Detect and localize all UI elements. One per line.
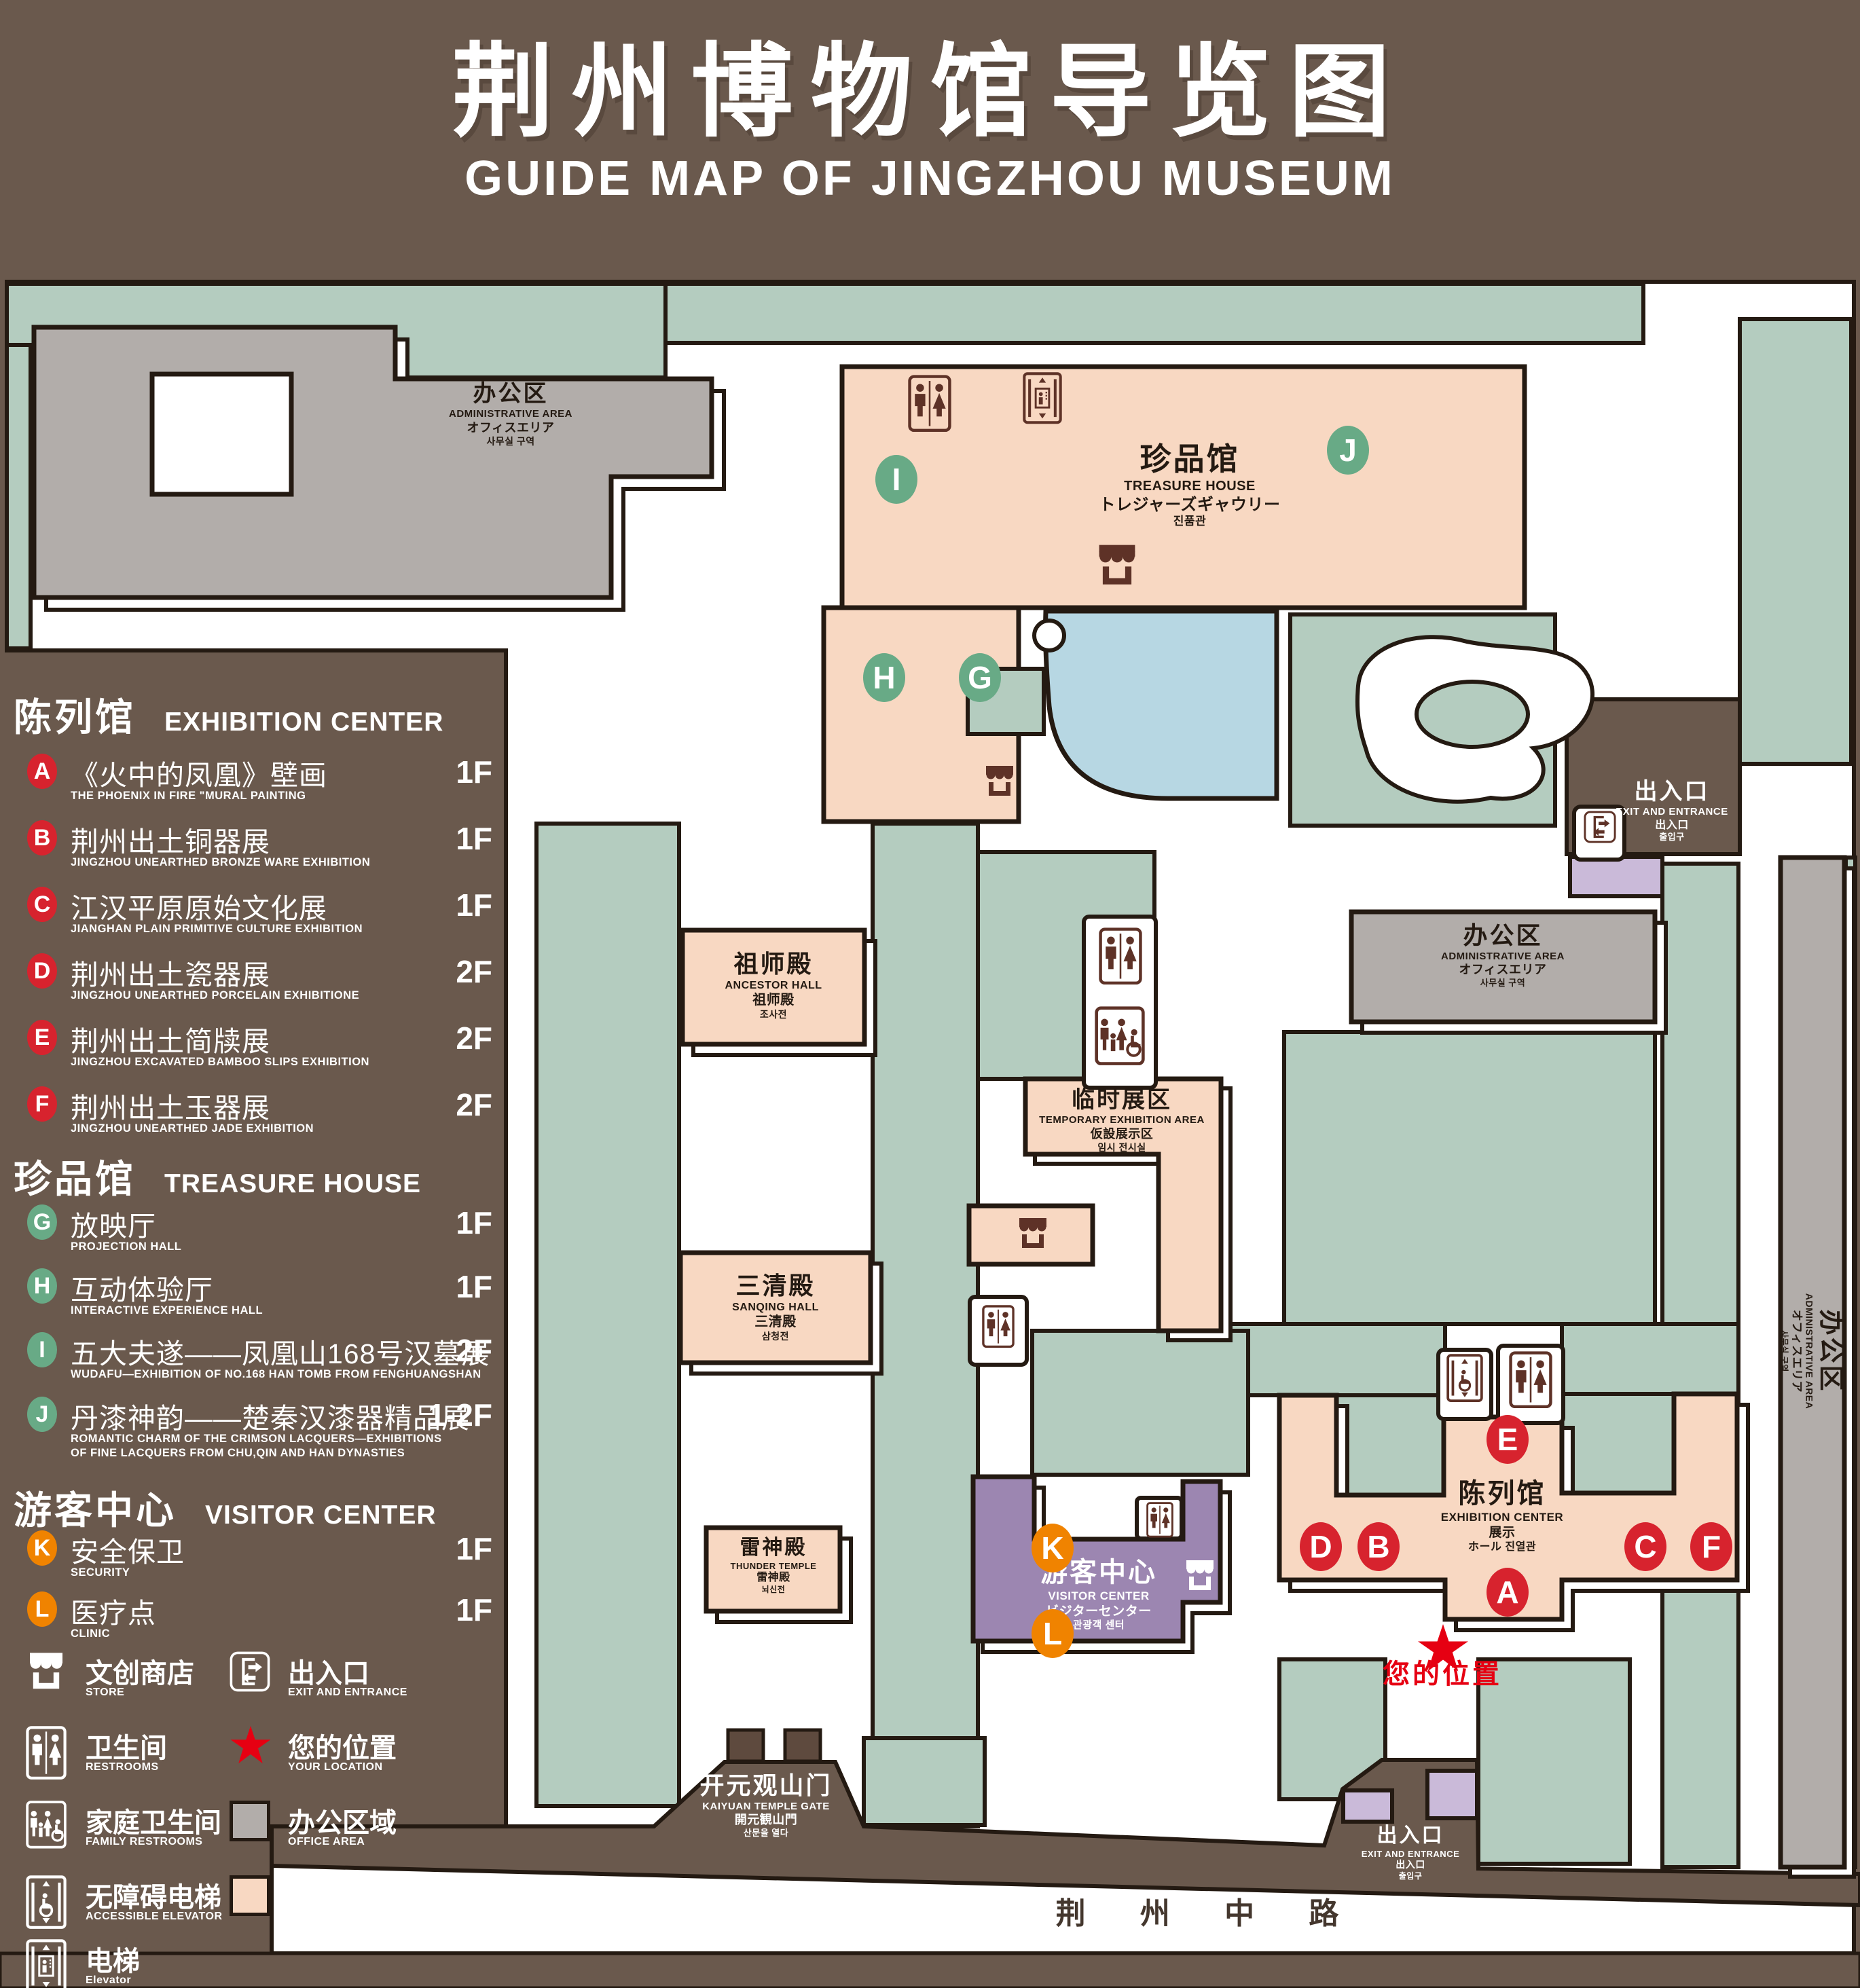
- legend-badge-I: I: [27, 1332, 57, 1367]
- legend-item-floor: 1F: [390, 887, 492, 923]
- elevator-icon-label-en: Elevator: [86, 1974, 131, 1987]
- pond: [1046, 611, 1277, 798]
- building-admin-right: [1351, 912, 1655, 1022]
- legend-item-zh: 荆州出土铜器展: [71, 819, 270, 860]
- guide-map-poster: 荆州博物馆导览图 GUIDE MAP OF JINGZHOU MUSEUM: [0, 0, 1860, 1988]
- office-area-swatch: [230, 1801, 270, 1841]
- legend-item-en: INTERACTIVE EXPERIENCE HALL: [71, 1304, 263, 1318]
- legend-item-en: PROJECTION HALL: [71, 1240, 181, 1254]
- legend-badge-G: G: [27, 1204, 57, 1240]
- legend-panel: 陈列馆EXHIBITION CENTERA《火中的凤凰》壁画THE PHOENI…: [14, 0, 503, 1988]
- legend-item-floor: 2F: [390, 953, 492, 990]
- your-location-icon-label-en: YOUR LOCATION: [288, 1761, 383, 1773]
- elevator-icon-label-zh: 电梯: [86, 1939, 140, 1978]
- legend-section-treasure-house: 珍品馆TREASURE HOUSE: [14, 1149, 421, 1204]
- office-area-swatch-label-zh: 办公区域: [288, 1801, 397, 1840]
- exit-icon: [230, 1651, 270, 1692]
- legend-item-zh: 江汉平原原始文化展: [71, 885, 327, 926]
- gate-pillar: [728, 1730, 763, 1761]
- legend-item-zh: 《火中的凤凰》壁画: [71, 752, 327, 793]
- legend-badge-L: L: [27, 1591, 57, 1627]
- accessible-elevator-icon: [26, 1875, 67, 1929]
- your-location-icon-label-zh: 您的位置: [288, 1726, 397, 1765]
- store-icon-label-en: STORE: [86, 1687, 124, 1699]
- legend-item-en: THE PHOENIX IN FIRE "MURAL PAINTING: [71, 789, 306, 803]
- legend-item-floor: 2F: [390, 1086, 492, 1123]
- pond-island: [968, 669, 1044, 734]
- legend-item-zh: 荆州出土简牍展: [71, 1018, 270, 1059]
- legend-item-floor: 2F: [390, 1020, 492, 1056]
- store-icon-label-zh: 文创商店: [86, 1651, 194, 1691]
- family-restrooms-icon-label-zh: 家庭卫生间: [86, 1801, 221, 1840]
- display-area-swatch-label-en: DISPLAY AREA: [288, 1911, 371, 1923]
- accessible-elevator-icon-label-en: ACCESSIBLE ELEVATOR: [86, 1911, 223, 1923]
- building-thunder-temple: [706, 1528, 840, 1611]
- legend-item-en: CLINIC: [71, 1627, 110, 1641]
- legend-item-floor: 1F: [390, 1591, 492, 1628]
- legend-item-floor: 1F: [390, 754, 492, 790]
- legend-item-floor: 1F: [390, 1268, 492, 1305]
- legend-item-zh: 医疗点: [71, 1590, 156, 1631]
- elevator-icon: [26, 1939, 67, 1988]
- legend-badge-H: H: [27, 1268, 57, 1304]
- restrooms-icon: [26, 1726, 67, 1780]
- legend-item-zh: 放映厅: [71, 1203, 156, 1244]
- legend-item-zh: 荆州出土玉器展: [71, 1085, 270, 1126]
- legend-item-en: JINGZHOU UNEARTHED JADE EXHIBITION: [71, 1122, 314, 1136]
- legend-item-floor: 1-2F: [390, 1397, 492, 1433]
- legend-section-title-en: TREASURE HOUSE: [164, 1169, 421, 1199]
- legend-item-floor: 1F: [390, 1204, 492, 1241]
- legend-badge-A: A: [27, 754, 57, 789]
- family-restrooms-icon: [26, 1801, 67, 1849]
- legend-item-zh: 互动体验厅: [71, 1267, 213, 1308]
- building-treasure-house: [842, 367, 1525, 608]
- garden-lawn: [1417, 682, 1528, 747]
- display-area-swatch: [230, 1875, 270, 1916]
- legend-badge-F: F: [27, 1086, 57, 1122]
- legend-item-en: JINGZHOU UNEARTHED PORCELAIN EXHIBITIONE: [71, 989, 359, 1003]
- exit-icon-label-zh: 出入口: [288, 1651, 369, 1691]
- legend-section-visitor-center: 游客中心VISITOR CENTER: [14, 1480, 437, 1535]
- legend-section-exhibition-center: 陈列馆EXHIBITION CENTER: [14, 687, 443, 742]
- legend-section-title-zh: 游客中心: [14, 1480, 177, 1535]
- office-area-swatch-label-en: OFFICE AREA: [288, 1836, 365, 1848]
- legend-item-en: JINGZHOU UNEARTHED BRONZE WARE EXHIBITIO…: [71, 855, 370, 870]
- legend-badge-K: K: [27, 1530, 57, 1566]
- legend-item-floor: 2F: [390, 1332, 492, 1369]
- legend-section-title-zh: 珍品馆: [14, 1149, 136, 1204]
- building-shop: [969, 1206, 1093, 1264]
- legend-item-en: JINGZHOU EXCAVATED BAMBOO SLIPS EXHIBITI…: [71, 1055, 369, 1069]
- family-restrooms-icon-label-en: FAMILY RESTROOMS: [86, 1836, 202, 1848]
- pond-bridge: [1034, 621, 1064, 650]
- accessible-elevator-icon-label-zh: 无障碍电梯: [86, 1875, 221, 1915]
- legend-item-en: WUDAFU—EXHIBITION OF NO.168 HAN TOMB FRO…: [71, 1367, 481, 1382]
- exit-icon-label-en: EXIT AND ENTRANCE: [288, 1687, 407, 1699]
- legend-section-title-zh: 陈列馆: [14, 687, 136, 742]
- legend-badge-D: D: [27, 953, 57, 989]
- gate-pillar: [785, 1730, 820, 1761]
- legend-item-zh: 安全保卫: [71, 1529, 185, 1570]
- legend-item-en: JIANGHAN PLAIN PRIMITIVE CULTURE EXHIBIT…: [71, 922, 363, 936]
- legend-section-title-en: VISITOR CENTER: [205, 1501, 437, 1530]
- your-location-icon: [230, 1726, 272, 1766]
- legend-section-title-en: EXHIBITION CENTER: [164, 707, 443, 737]
- display-area-swatch-label-zh: 展示区域: [288, 1875, 397, 1915]
- building-ancestor-hall: [682, 930, 864, 1044]
- legend-badge-C: C: [27, 887, 57, 922]
- legend-badge-E: E: [27, 1020, 57, 1055]
- building-admin-far-right: [1781, 858, 1844, 1867]
- legend-item-floor: 1F: [390, 820, 492, 857]
- legend-item-en: SECURITY: [71, 1566, 130, 1580]
- legend-item-floor: 1F: [390, 1530, 492, 1567]
- legend-item-zh: 荆州出土瓷器展: [71, 952, 270, 993]
- restrooms-icon-label-zh: 卫生间: [86, 1726, 167, 1765]
- legend-item-en: ROMANTIC CHARM OF THE CRIMSON LACQUERS—E…: [71, 1432, 451, 1461]
- legend-badge-B: B: [27, 820, 57, 855]
- restrooms-icon-label-en: RESTROOMS: [86, 1761, 159, 1773]
- store-icon: [26, 1651, 67, 1691]
- building-sanqing-hall: [680, 1253, 871, 1363]
- legend-badge-J: J: [27, 1397, 57, 1432]
